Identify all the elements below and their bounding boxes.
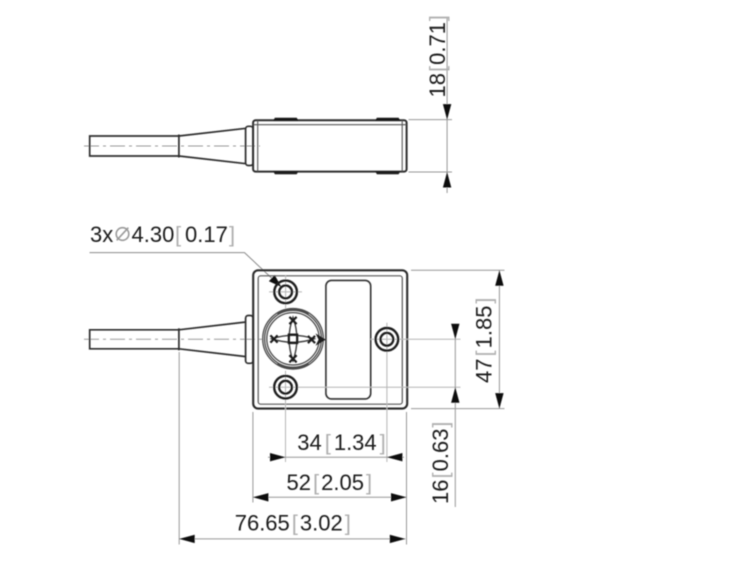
svg-text:76.65[3.02]: 76.65[3.02] xyxy=(235,510,351,535)
svg-text:[: [ xyxy=(175,222,181,247)
svg-text:18[0.71]: 18[0.71] xyxy=(425,15,450,98)
svg-text:3x: 3x xyxy=(90,222,113,247)
svg-text:16[0.63]: 16[0.63] xyxy=(428,421,453,504)
svg-text:4.30: 4.30 xyxy=(132,222,175,247)
svg-text:52[2.05]: 52[2.05] xyxy=(287,470,373,495)
svg-text:0.17: 0.17 xyxy=(185,222,228,247)
svg-text:]: ] xyxy=(229,222,235,247)
svg-text:47[1.85]: 47[1.85] xyxy=(472,297,497,383)
svg-text:34[1.34]: 34[1.34] xyxy=(297,430,386,455)
